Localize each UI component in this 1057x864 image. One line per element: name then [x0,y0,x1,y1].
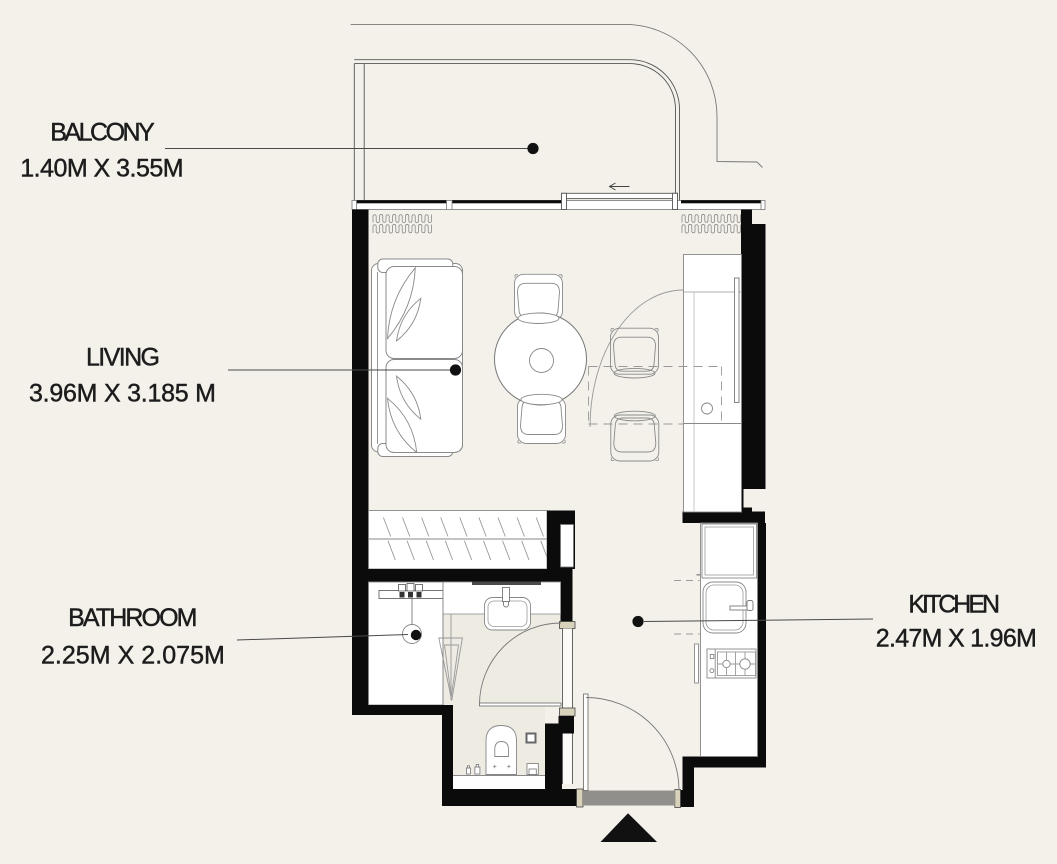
svg-text:1.40M X 3.55M: 1.40M X 3.55M [20,154,183,182]
svg-text:BALCONY: BALCONY [50,119,155,147]
svg-text:LIVING: LIVING [86,344,160,372]
svg-text:2.25M X 2.075M: 2.25M X 2.075M [41,641,225,669]
svg-text:2.47M X 1.96M: 2.47M X 1.96M [876,624,1037,652]
svg-text:BATHROOM: BATHROOM [68,604,197,632]
svg-text:3.96M X 3.185 M: 3.96M X 3.185 M [29,379,216,407]
svg-text:KITCHEN: KITCHEN [908,590,1000,618]
